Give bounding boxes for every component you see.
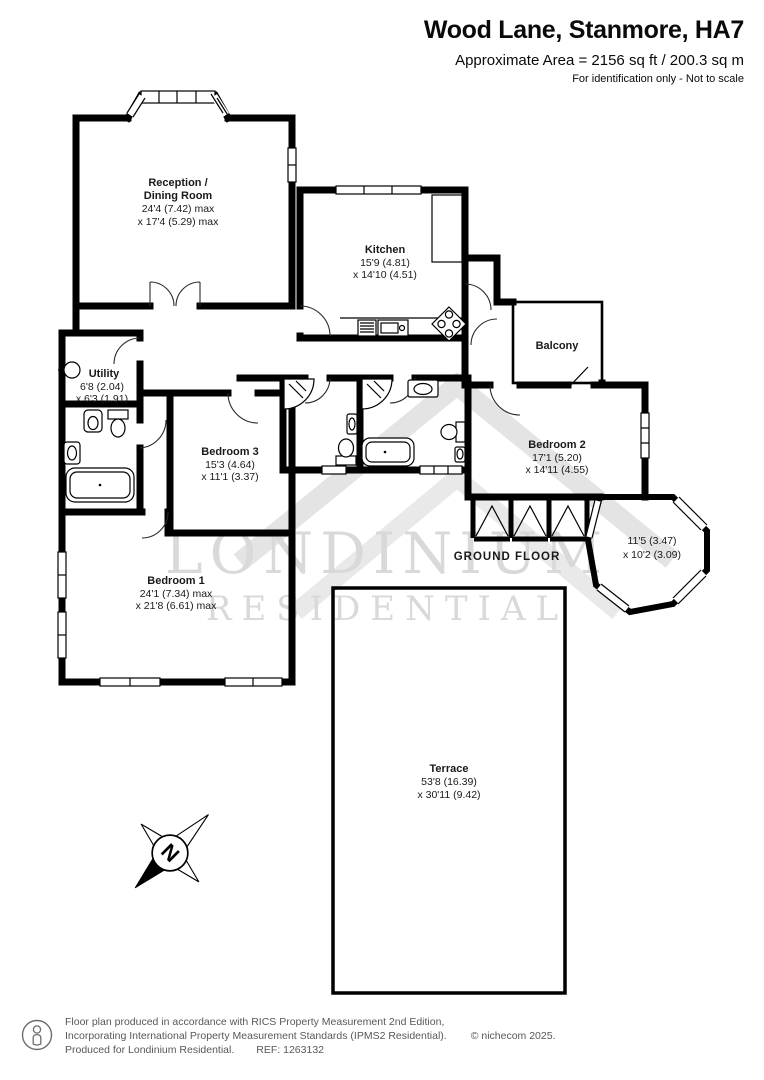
footer: Floor plan produced in accordance with R… [20,1016,556,1058]
bathroom-fixtures [64,410,134,502]
bedroom1-dim1: 24'1 (7.34) max [140,588,213,600]
room-reception: Reception / Dining Room 24'4 (7.42) max … [138,177,220,228]
kitchen-window [336,186,421,194]
bedroom3-dim1: 15'3 (4.64) [205,459,255,471]
reception-double-door-left [150,282,174,306]
room-utility: Utility 6'8 (2.04) x 6'3 (1.91) [76,368,128,405]
utility-dim2: x 6'3 (1.91) [76,393,128,405]
kitchen-sink-icon [378,320,408,336]
bay-dim1: 11'5 (3.47) [627,535,676,547]
reception-label-2: Dining Room [144,190,213,202]
room-bedroom2: Bedroom 2 17'1 (5.20) x 14'11 (4.55) [525,439,588,476]
terrace-dim1: 53'8 (16.39) [421,776,477,788]
footer-ref: REF: 1263132 [256,1044,324,1056]
toilet-icon [108,410,128,419]
entrance-door-leaf [568,367,588,388]
bedroom3-label: Bedroom 3 [201,446,258,458]
kitchen-door [300,306,330,336]
bay-dim2: x 10'2 (3.09) [623,549,681,561]
hall-door1 [465,284,491,310]
reception-side-window [288,148,296,182]
washbasin-icon [64,442,80,464]
room-terrace: Terrace 53'8 (16.39) x 30'11 (9.42) [333,588,565,993]
bidet-icon [84,410,102,432]
bedroom2-dim1: 17'1 (5.20) [532,452,582,464]
reception-label-1: Reception / [148,177,207,189]
hall-door2 [471,319,497,345]
terrace-dim2: x 30'11 (9.42) [417,789,480,801]
kitchen-unit [432,195,462,262]
footer-line1: Floor plan produced in accordance with R… [65,1016,556,1030]
kitchen-label: Kitchen [365,244,406,256]
watermark-line2: RESIDENTIAL [206,589,568,629]
reception-dim1: 24'4 (7.42) max [142,203,215,215]
bedroom1-label: Bedroom 1 [147,575,204,587]
bedroom2-label: Bedroom 2 [528,439,585,451]
kitchen-dim1: 15'9 (4.81) [360,257,410,269]
utility-door [114,338,140,364]
floor-plan: LONDINIUM RESIDENTIAL Terrace 53'8 (16.3… [0,0,764,1080]
bedroom2-side-window [641,413,649,458]
utility-dim1: 6'8 (2.04) [80,381,124,393]
reception-bay-window [127,91,229,117]
bedroom3-dim2: x 11'1 (3.37) [201,471,258,483]
bathroom-door [140,420,166,448]
footer-line2: Incorporating International Property Mea… [65,1030,447,1042]
reception-dim2: x 17'4 (5.29) max [138,216,220,228]
bedroom1-dim2: x 21'8 (6.61) max [136,600,218,612]
kitchen-dim2: x 14'10 (4.51) [353,269,417,281]
footer-line3: Produced for Londinium Residential. [65,1044,234,1056]
balcony-label: Balcony [536,340,580,352]
floor-level-label: GROUND FLOOR [454,551,561,563]
reception-double-door-right [176,282,200,306]
bedroom3-door [228,393,258,423]
room-kitchen: Kitchen 15'9 (4.81) x 14'10 (4.51) [353,244,417,281]
room-bedroom3: Bedroom 3 15'3 (4.64) x 11'1 (3.37) [201,446,258,483]
compass-rose: N [106,786,237,917]
bedroom2-dim2: x 14'11 (4.55) [525,464,588,476]
footer-copyright: © nichecom 2025. [471,1030,556,1042]
utility-label: Utility [89,368,120,380]
room-balcony: Balcony [513,302,602,385]
nichecom-logo-icon [20,1016,56,1054]
terrace-label: Terrace [430,763,469,775]
